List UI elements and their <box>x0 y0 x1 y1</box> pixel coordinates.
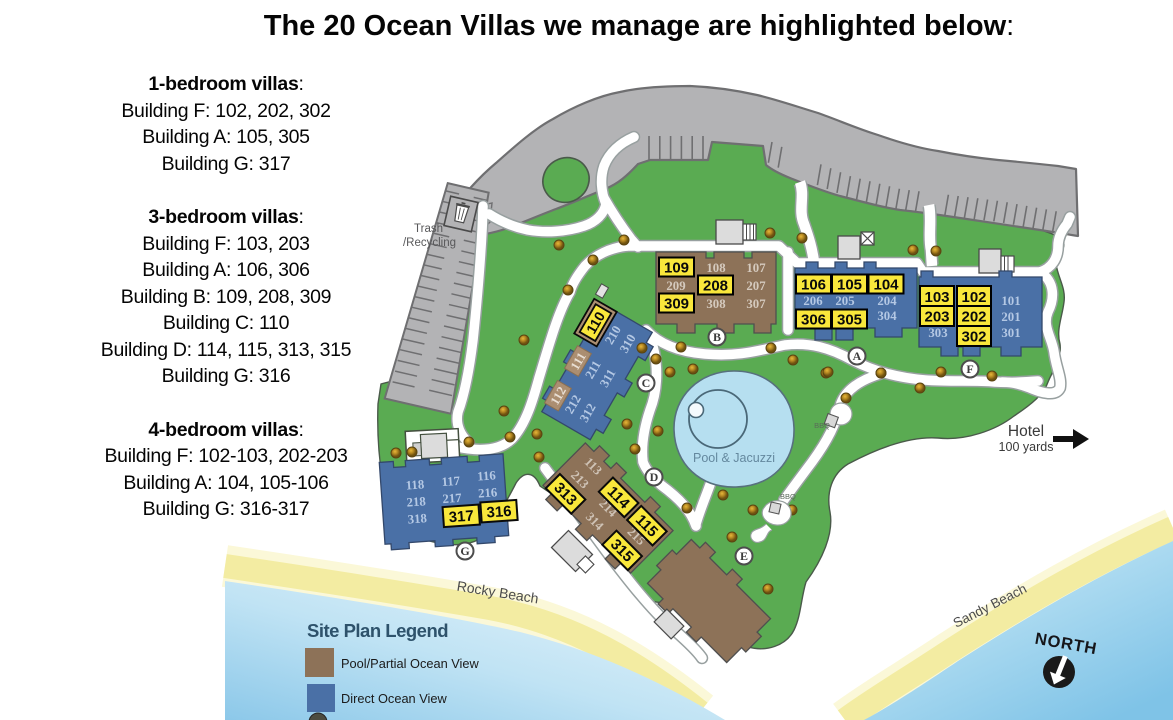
svg-text:Pool/Partial Ocean View: Pool/Partial Ocean View <box>341 656 480 671</box>
svg-text:303: 303 <box>928 326 947 340</box>
svg-text:218: 218 <box>406 494 426 509</box>
svg-text:209: 209 <box>666 279 685 293</box>
svg-text:Direct Ocean View: Direct Ocean View <box>341 691 447 706</box>
svg-text:118: 118 <box>405 477 424 492</box>
svg-text:116: 116 <box>477 468 497 483</box>
svg-text:A: A <box>853 349 862 363</box>
svg-text:102: 102 <box>961 289 986 306</box>
svg-text:306: 306 <box>801 311 826 328</box>
svg-text:103: 103 <box>924 289 949 306</box>
svg-text:204: 204 <box>877 294 897 308</box>
svg-text:F: F <box>966 362 973 376</box>
svg-text:208: 208 <box>703 277 728 294</box>
svg-text:317: 317 <box>448 507 474 526</box>
svg-text:109: 109 <box>664 259 689 276</box>
svg-text:318: 318 <box>407 511 427 526</box>
svg-text:203: 203 <box>924 308 949 325</box>
svg-text:107: 107 <box>746 261 766 275</box>
svg-text:301: 301 <box>1001 326 1020 340</box>
svg-text:Pool & Jacuzzi: Pool & Jacuzzi <box>693 451 775 465</box>
svg-text:117: 117 <box>441 474 461 489</box>
svg-text:100 yards: 100 yards <box>999 440 1054 454</box>
svg-text:104: 104 <box>873 276 899 293</box>
svg-text:105: 105 <box>837 276 862 293</box>
svg-text:309: 309 <box>664 295 689 312</box>
svg-text:201: 201 <box>1001 310 1020 324</box>
svg-text:BBQ: BBQ <box>814 421 830 430</box>
svg-text:206: 206 <box>803 294 823 308</box>
svg-text:216: 216 <box>478 485 499 500</box>
svg-text:316: 316 <box>486 503 512 522</box>
svg-text:305: 305 <box>837 311 862 328</box>
svg-text:G: G <box>460 544 469 558</box>
svg-text:C: C <box>642 376 651 390</box>
svg-text:Site Plan Legend: Site Plan Legend <box>307 620 448 641</box>
svg-text:E: E <box>740 549 748 563</box>
svg-text:106: 106 <box>801 276 826 293</box>
svg-text:108: 108 <box>706 261 725 275</box>
svg-text:D: D <box>650 470 659 484</box>
svg-text:207: 207 <box>746 279 766 293</box>
svg-text:/Recycling: /Recycling <box>403 237 456 249</box>
svg-text:Trash: Trash <box>414 223 443 235</box>
svg-text:302: 302 <box>961 328 986 345</box>
svg-text:307: 307 <box>746 297 766 311</box>
svg-text:304: 304 <box>877 309 897 323</box>
svg-text:BBQ: BBQ <box>780 492 796 501</box>
svg-text:Hotel: Hotel <box>1008 423 1044 440</box>
svg-text:308: 308 <box>706 297 725 311</box>
svg-text:B: B <box>713 330 721 344</box>
svg-text:202: 202 <box>961 308 986 325</box>
svg-text:101: 101 <box>1001 294 1020 308</box>
svg-text:205: 205 <box>835 294 854 308</box>
svg-text:217: 217 <box>442 491 463 506</box>
